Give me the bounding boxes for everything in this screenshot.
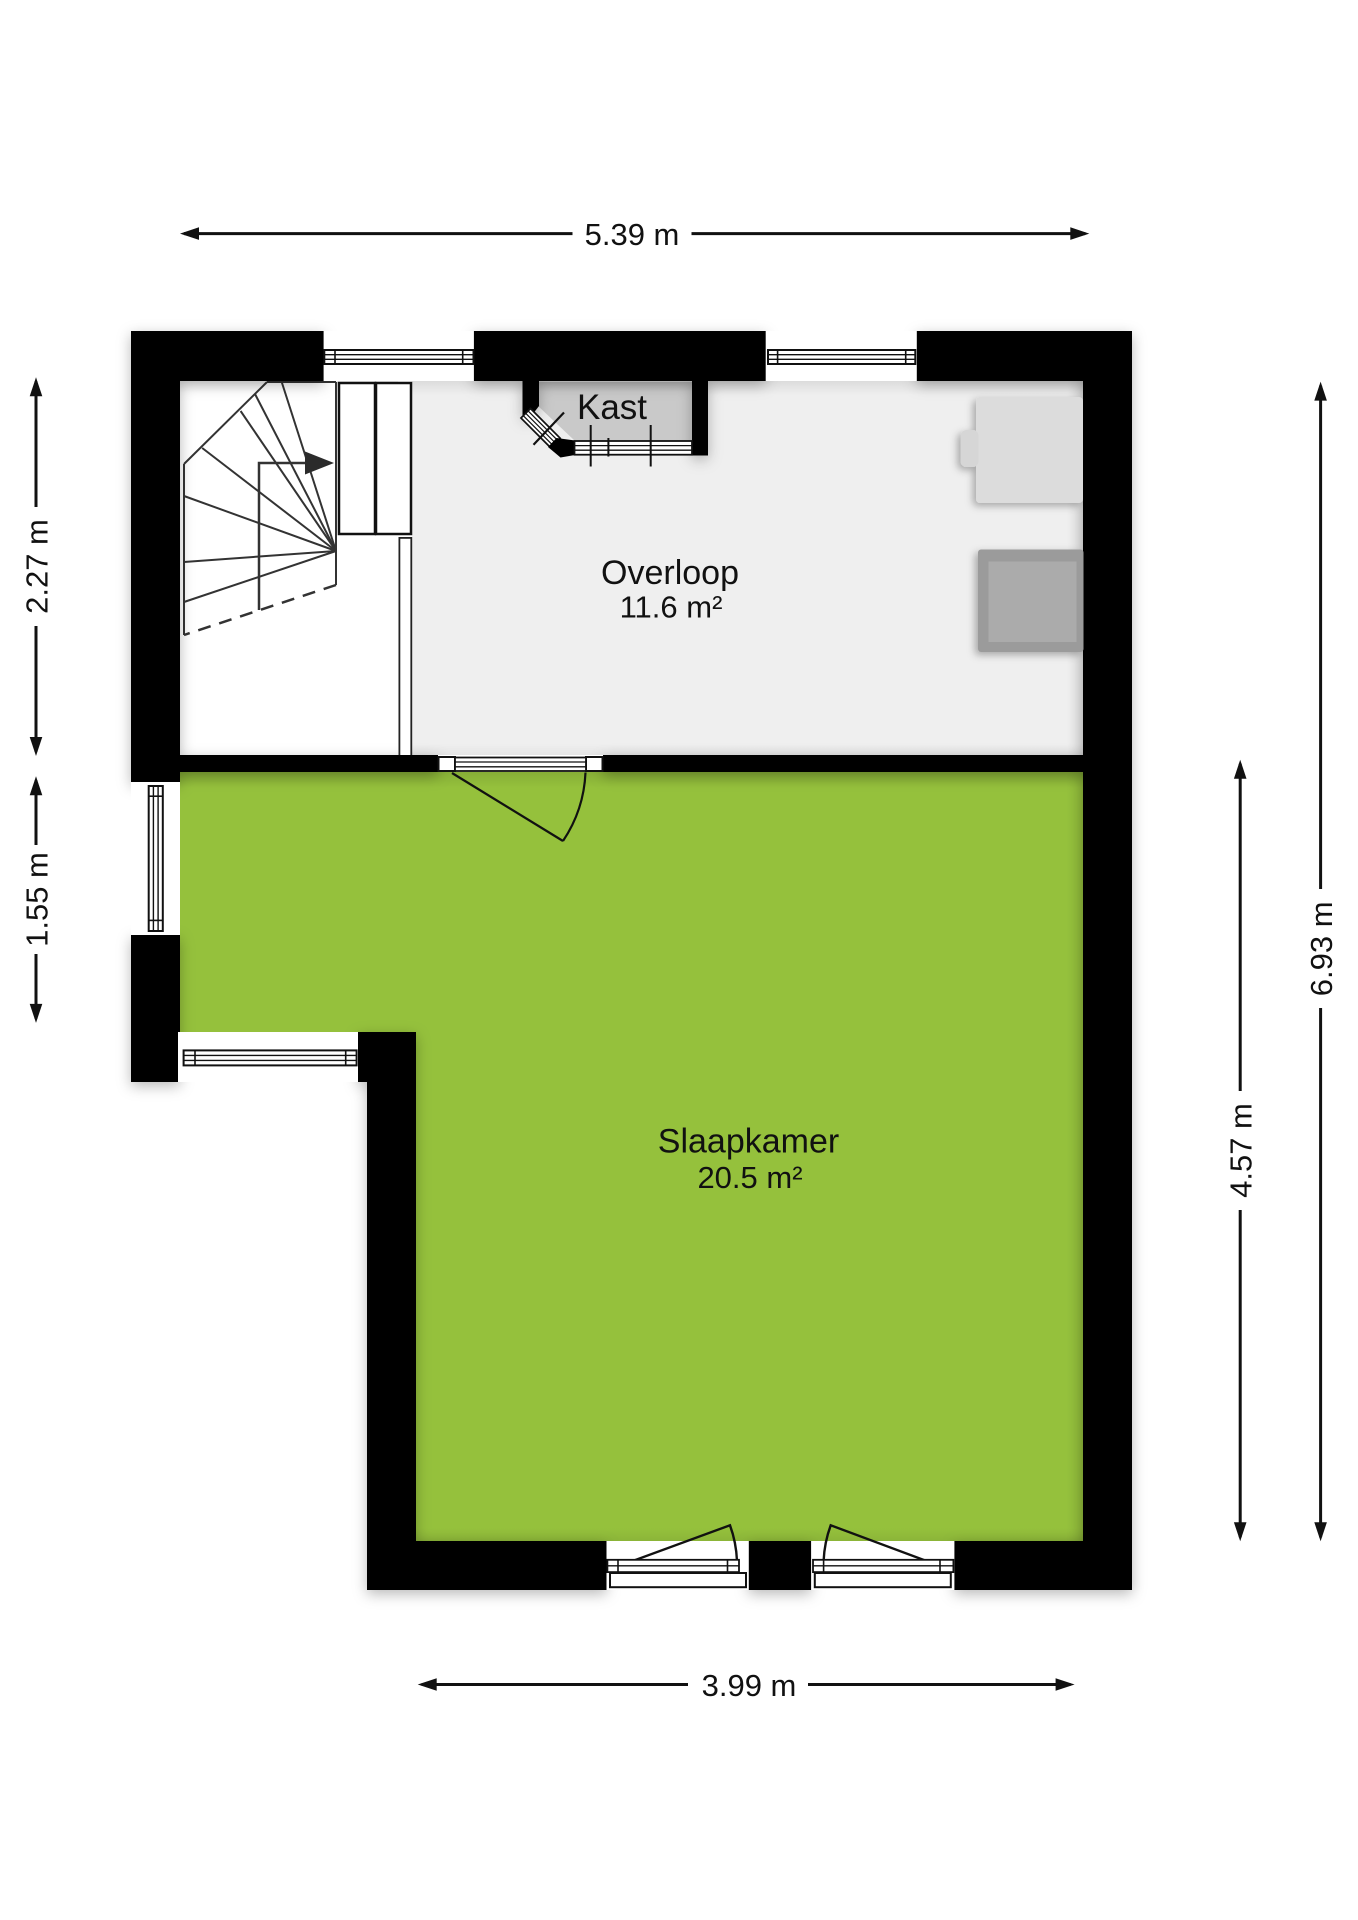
svg-text:5.39 m: 5.39 m [585, 217, 680, 252]
svg-text:2.27 m: 2.27 m [20, 519, 55, 614]
svg-text:Overloop: Overloop [601, 554, 739, 592]
svg-text:20.5 m²: 20.5 m² [697, 1160, 802, 1195]
svg-text:Slaapkamer: Slaapkamer [658, 1123, 839, 1161]
svg-text:1.55 m: 1.55 m [20, 852, 55, 947]
svg-text:6.93 m: 6.93 m [1304, 901, 1339, 996]
svg-text:3.99 m: 3.99 m [702, 1668, 797, 1703]
svg-text:Kast: Kast [577, 388, 647, 427]
svg-text:4.57 m: 4.57 m [1224, 1103, 1259, 1198]
svg-text:11.6 m²: 11.6 m² [620, 590, 723, 625]
